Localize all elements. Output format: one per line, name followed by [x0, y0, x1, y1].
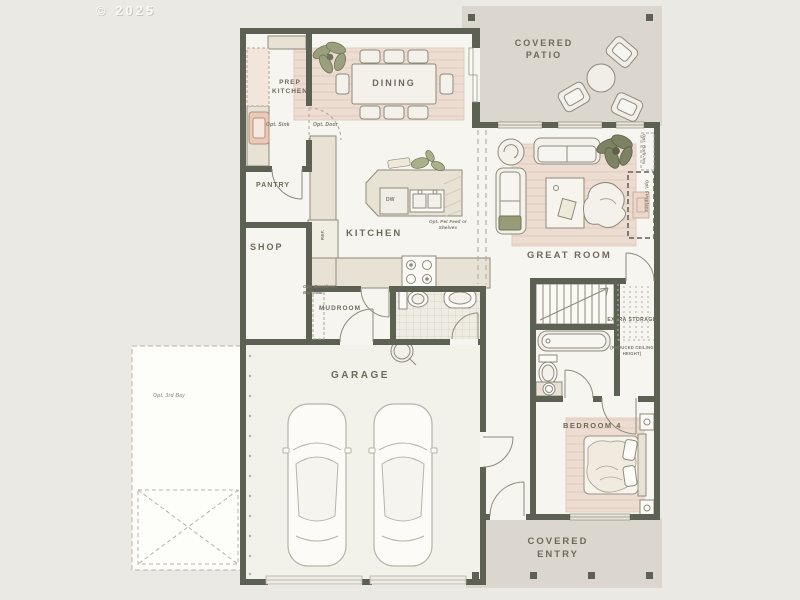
annotation-opt-pet-feed: Opt. Pet Feed or Shelves: [424, 219, 472, 231]
room-label-great-room: GREAT ROOM: [527, 250, 612, 263]
opt-cabinet: [247, 48, 269, 106]
room-label-extra-storage: EXTRA STORAGE (REDUCED CEILING HEIGHT): [607, 295, 657, 378]
stairs: [536, 284, 614, 324]
room-label-kitchen: KITCHEN: [346, 228, 402, 241]
sliding-door-panel: [473, 75, 477, 102]
opt-third-bay-outline: [132, 346, 244, 570]
swivel-chair: [498, 139, 524, 165]
annotation-dishwasher: DW: [386, 197, 395, 204]
room-label-prep-kitchen: PREP KITCHEN: [270, 79, 310, 97]
annotation-opt-fireplace: Opt. Fireplace: [644, 180, 650, 238]
floor-plan-graphics: [0, 0, 800, 600]
range: [402, 256, 436, 288]
sliding-door-panel: [469, 48, 473, 75]
room-label-bedroom-4: BEDROOM 4: [563, 421, 622, 431]
room-label-covered-entry: COVERED ENTRY: [512, 536, 604, 562]
copyright-watermark: © 2025: [96, 3, 156, 18]
headboard: [638, 434, 646, 496]
room-label-mudroom: MUDROOM: [319, 305, 361, 314]
pillow: [623, 465, 638, 486]
nightstand: [640, 414, 654, 430]
toilet-tank: [539, 355, 557, 362]
nightstand: [640, 500, 654, 516]
floor-plan: © 2025 COVERED PATIO PREP KITCHEN DINING…: [0, 0, 800, 600]
patio-table: [587, 64, 615, 92]
annotation-opt-built-ins: Opt. Built-Ins: [641, 134, 647, 176]
annotation-refrigerator: REF.: [320, 221, 326, 249]
room-label-garage: GARAGE: [331, 369, 390, 383]
pillow: [499, 216, 521, 230]
annotation-opt-door: Opt. Door: [313, 122, 338, 129]
room-label-shop: SHOP: [250, 241, 284, 253]
room-label-pantry: PANTRY: [256, 181, 290, 190]
room-label-covered-patio: COVERED PATIO: [500, 37, 588, 61]
annotation-opt-sink: Opt. Sink: [266, 122, 290, 129]
room-label-dining: DINING: [352, 77, 436, 89]
extra-storage-line1: EXTRA STORAGE: [607, 317, 657, 324]
annotation-opt-bench: Opt. Bench or Built-ins: [303, 284, 347, 296]
annotation-opt-3rd-bay: Opt. 3rd Bay: [153, 393, 185, 400]
extra-storage-line2: (REDUCED CEILING HEIGHT): [607, 345, 657, 356]
